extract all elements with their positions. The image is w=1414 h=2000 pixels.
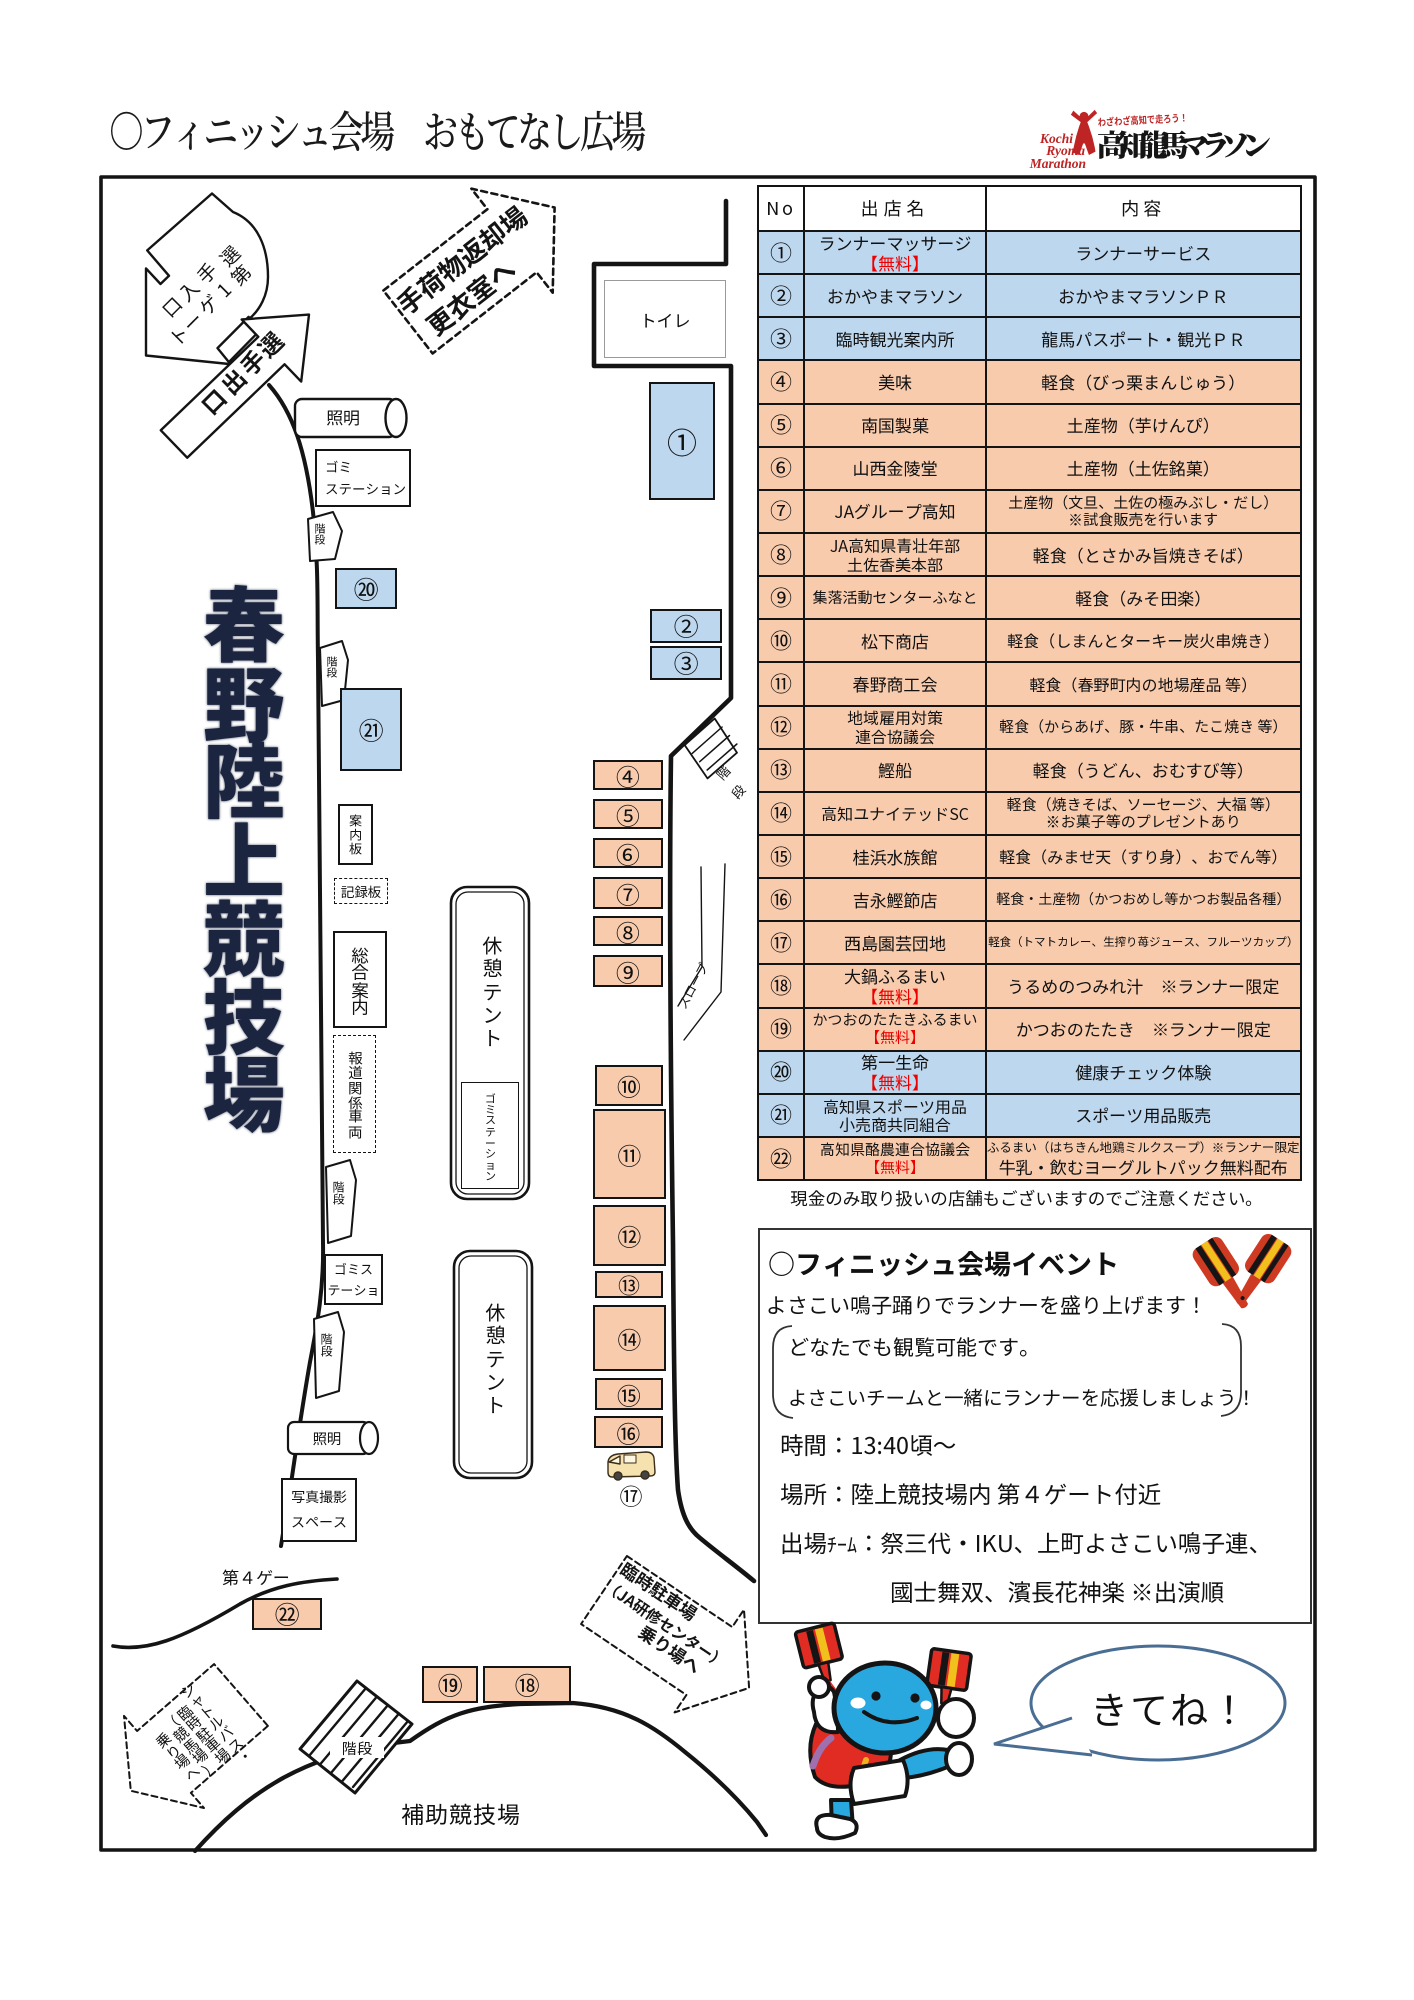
svg-text:スロープ: スロープ xyxy=(672,959,712,1012)
svg-text:照明: 照明 xyxy=(326,404,360,429)
svg-text:段: 段 xyxy=(726,780,749,802)
svg-text:照明: 照明 xyxy=(313,1428,342,1449)
svg-text:階段: 階段 xyxy=(342,1738,372,1759)
